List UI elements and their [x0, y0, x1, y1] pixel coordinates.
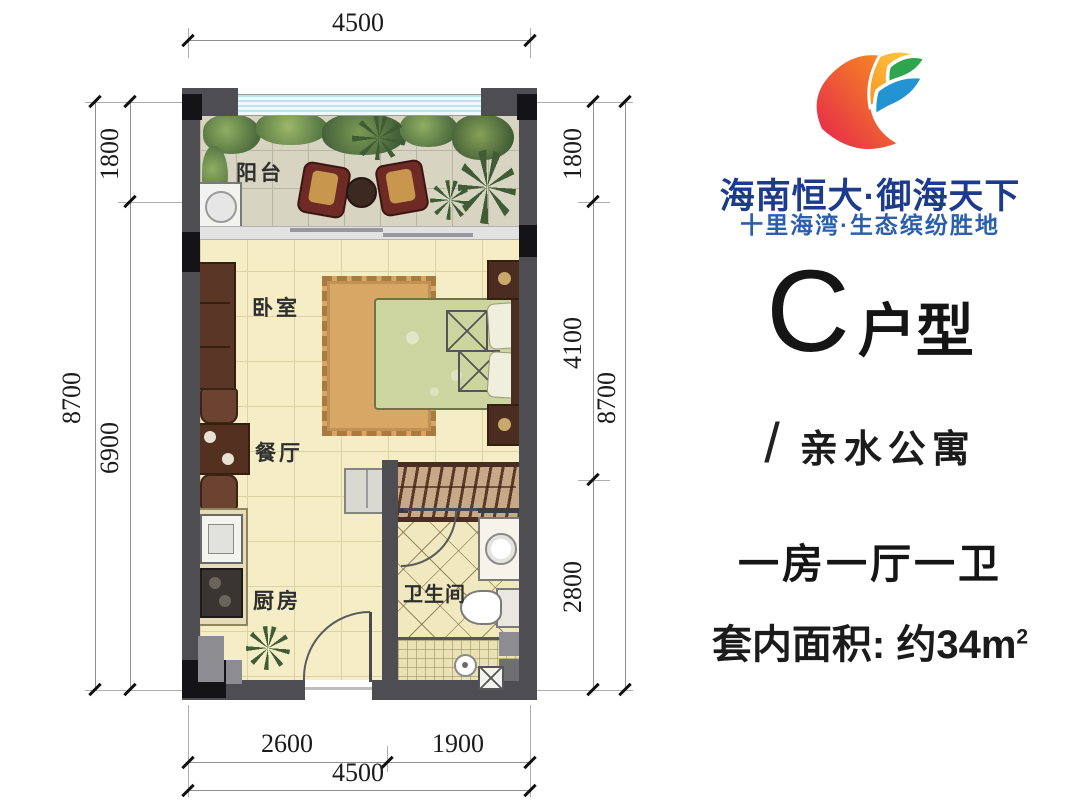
column	[519, 225, 537, 257]
unit-letter: C	[766, 262, 850, 361]
palm-plant	[458, 150, 516, 224]
lounge-chair	[296, 160, 352, 220]
extension-line	[530, 705, 531, 797]
room-label-dining: 餐厅	[255, 437, 303, 467]
dim-left-seg1: 1800	[95, 104, 125, 204]
sink-basin	[208, 524, 234, 554]
palm-plant	[430, 180, 470, 220]
unit-rooms-line: 一房一厅一卫	[660, 530, 1080, 590]
chair-cushion	[385, 168, 416, 204]
extension-line	[188, 28, 189, 58]
right-wall	[519, 88, 537, 700]
sliding-door-track	[200, 226, 519, 240]
plant	[400, 111, 458, 147]
balcony-table	[346, 177, 377, 208]
entry-threshold	[305, 687, 372, 690]
stove	[200, 568, 243, 618]
bathroom-wall	[382, 460, 398, 700]
dim-bottom-seg2: 1900	[408, 729, 508, 759]
flyer-canvas: 阳台 卧室 餐厅 厨房 卫生间 4500 8700 1800 6900	[0, 0, 1080, 810]
dim-right-seg3: 2800	[558, 537, 588, 637]
kitchen-sink	[200, 514, 243, 564]
dim-bottom-seg1: 2600	[237, 729, 337, 759]
fridge-door-split	[366, 470, 368, 508]
potted-plant	[246, 626, 290, 670]
burner	[219, 595, 231, 607]
unit-area-text: 套内面积: 约34m	[712, 623, 1017, 667]
room-label-bedroom: 卧室	[252, 292, 300, 322]
info-panel: 海南恒大·御海天下 十里海湾·生态缤纷胜地 C 户型 / 亲水公寓 一房一厅一卫…	[660, 0, 1080, 810]
toilet-bowl	[460, 590, 502, 625]
unit-suffix: 户型	[858, 284, 974, 368]
shower-drain	[454, 654, 477, 677]
plant	[256, 111, 328, 145]
bathroom-door-leaf	[404, 508, 478, 511]
extension-line	[85, 690, 182, 691]
unit-area-line: 套内面积: 约34m2	[660, 612, 1080, 670]
dining-chair	[200, 388, 238, 424]
unit-category-row: / 亲水公寓	[660, 410, 1080, 475]
wardrobe-shelf	[198, 346, 230, 348]
bathroom-top-wall	[478, 508, 519, 513]
nightstand	[487, 404, 523, 446]
dim-line-bottom-outer	[188, 790, 531, 791]
lamp	[498, 418, 511, 431]
shaft-hatch	[478, 666, 504, 690]
dim-right-seg1: 1800	[558, 104, 588, 204]
drain-dot	[462, 662, 468, 668]
extension-line	[537, 102, 633, 103]
column	[517, 94, 537, 120]
dim-line-right-outer	[625, 102, 626, 690]
vanity-counter	[478, 517, 522, 581]
dim-line-top	[188, 40, 531, 41]
extension-line	[188, 705, 189, 797]
dim-bottom-total: 4500	[308, 758, 408, 788]
closet-rod	[395, 486, 516, 490]
balcony-window	[238, 94, 481, 116]
wall-inset	[226, 660, 242, 684]
bed-canopy-frame	[446, 310, 488, 352]
palm-plant	[352, 116, 406, 160]
washing-machine-drum	[205, 191, 237, 223]
column	[182, 94, 202, 120]
headboard	[511, 296, 519, 408]
unit-area-sup: 2	[1016, 626, 1028, 649]
entry-door-leaf	[369, 612, 372, 682]
unit-category: 亲水公寓	[800, 418, 976, 473]
room-label-kitchen: 厨房	[253, 585, 301, 615]
lounge-chair	[374, 158, 430, 218]
dim-left-total: 8700	[57, 348, 87, 448]
floor-plan: 阳台 卧室 餐厅 厨房 卫生间 4500 8700 1800 6900	[0, 0, 660, 810]
wall-inset	[499, 632, 519, 656]
dim-top-total: 4500	[308, 8, 408, 38]
sliding-door-panel	[383, 233, 473, 237]
plate	[222, 453, 234, 465]
nightstand	[487, 260, 523, 300]
sliding-door-panel	[290, 228, 383, 232]
dining-table	[194, 423, 250, 475]
column	[182, 232, 200, 272]
plate	[204, 431, 216, 443]
washing-machine	[198, 182, 242, 230]
wardrobe-shelf	[198, 302, 230, 304]
slash-mark: /	[764, 410, 780, 475]
dim-left-seg2: 6900	[95, 398, 125, 498]
burner	[209, 577, 221, 589]
wash-basin	[485, 533, 517, 565]
closet	[390, 462, 531, 522]
chair-cushion	[308, 170, 339, 206]
dim-right-total: 8700	[592, 348, 622, 448]
dim-line-left-inner	[130, 102, 131, 690]
lamp	[498, 272, 511, 285]
brand-subtitle: 十里海湾·生态缤纷胜地	[660, 206, 1080, 240]
conch-shell-logo-icon	[795, 40, 945, 160]
extension-line	[537, 690, 633, 691]
room-label-balcony: 阳台	[236, 157, 284, 187]
extension-line	[85, 102, 182, 103]
unit-name: C 户型	[660, 262, 1080, 368]
extension-line	[530, 28, 531, 58]
dining-chair	[200, 474, 238, 510]
room-label-bathroom: 卫生间	[403, 578, 466, 607]
dim-right-seg2: 4100	[558, 293, 588, 393]
left-wall	[182, 88, 200, 700]
wall-inset	[198, 636, 224, 682]
wardrobe	[196, 262, 236, 390]
